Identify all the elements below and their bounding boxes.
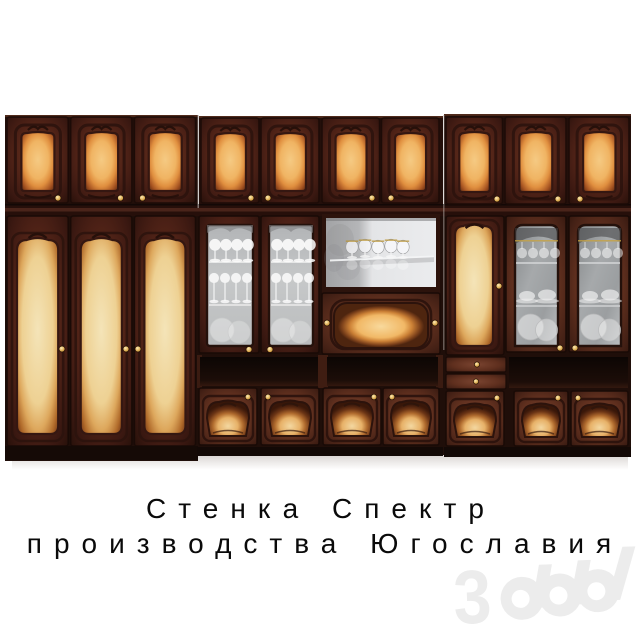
svg-text:3: 3 (452, 555, 493, 640)
